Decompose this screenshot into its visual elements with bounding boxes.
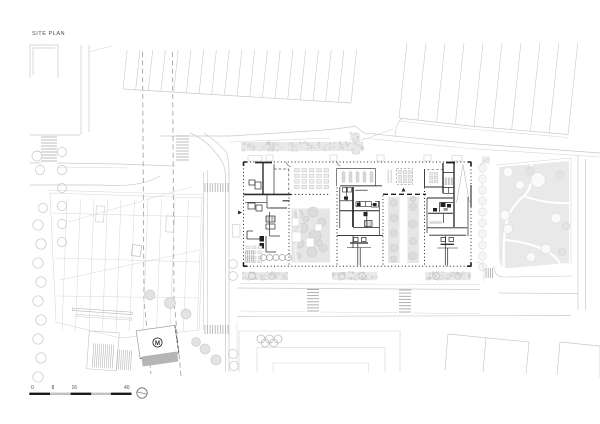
svg-text:40: 40 xyxy=(124,385,130,391)
svg-text:8: 8 xyxy=(52,385,55,391)
svg-text:16: 16 xyxy=(72,385,78,391)
svg-text:0: 0 xyxy=(31,385,34,391)
svg-text:M: M xyxy=(155,341,160,347)
svg-text:SITE PLAN: SITE PLAN xyxy=(32,31,65,37)
